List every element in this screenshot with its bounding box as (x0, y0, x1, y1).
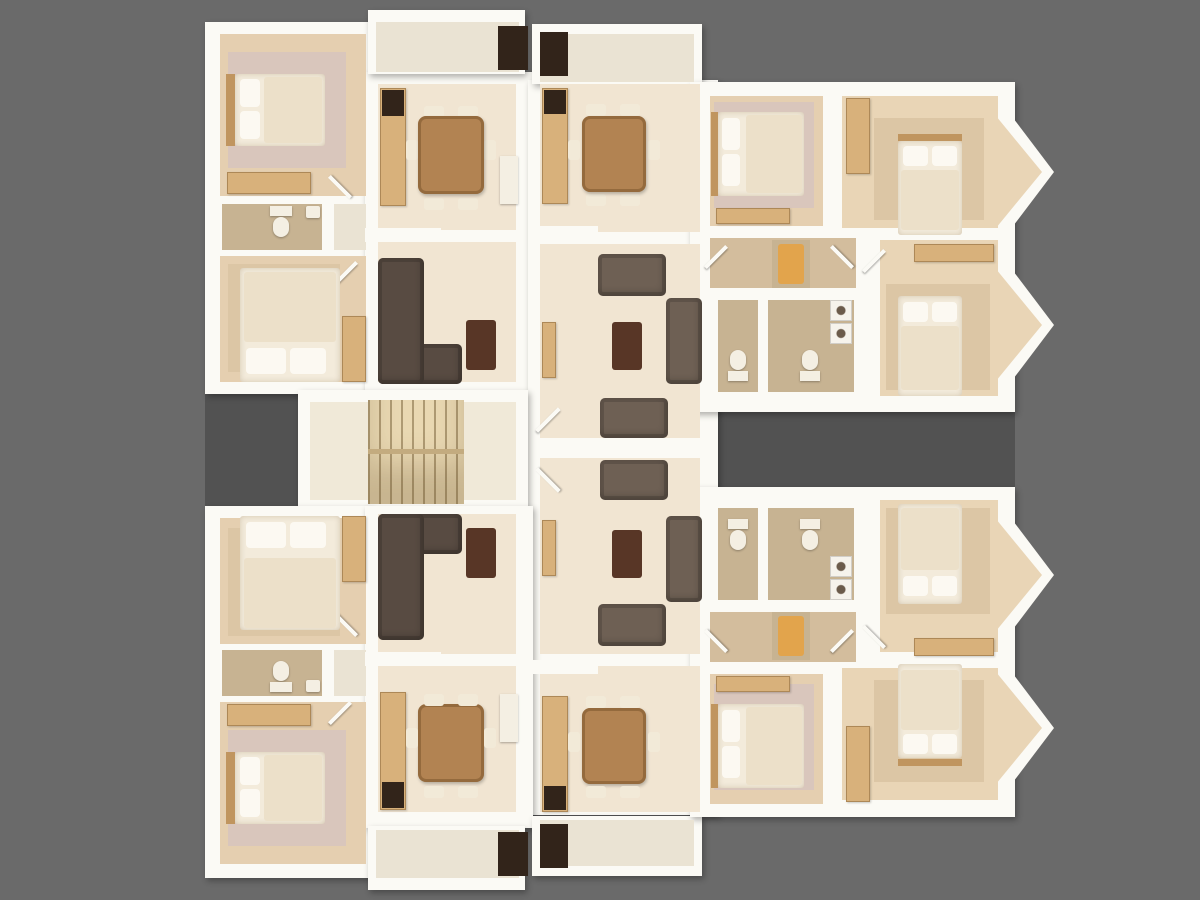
a-wardrobe (227, 172, 311, 194)
b-sofa-bottom (600, 398, 668, 438)
a-bed2-wardrobe (342, 316, 366, 382)
c-bed2-headboard (898, 134, 962, 141)
dining-chair (620, 104, 640, 116)
a-bed2-blanket (244, 272, 336, 342)
e-sideboard (542, 520, 556, 576)
c-bed1-dresser (716, 208, 790, 224)
a-coffee-table (466, 320, 496, 370)
balcony-mat (498, 832, 528, 876)
f-bed2-blanket (746, 707, 802, 785)
dining-chair (458, 786, 478, 798)
d-bed2-headboard (226, 752, 235, 824)
f-shower-mat (778, 616, 804, 656)
dining-chair (648, 732, 660, 752)
c-bed2-blanket (901, 170, 959, 230)
f-bed2-pillow (722, 710, 740, 742)
dining-chair (406, 728, 418, 748)
a-bed1-blanket (264, 77, 322, 143)
c-bed3-blanket (901, 326, 959, 390)
f-bed3-wardrobe (846, 726, 870, 802)
a-corridor-floor (334, 204, 366, 250)
c-toilet-bowl (802, 350, 818, 370)
d-bed1-pillow (246, 522, 286, 548)
f-bed2-pillow (722, 746, 740, 778)
a-bed2-pillow (246, 348, 286, 374)
d-toilet-bowl (273, 661, 289, 681)
f-bed1-pillow (903, 576, 928, 596)
c-bed1-pillow (722, 118, 740, 150)
c-washer (830, 323, 852, 344)
d-bed1-wardrobe (342, 516, 366, 582)
wall-stub (365, 228, 441, 242)
balcony-mat (540, 32, 568, 76)
dining-chair (406, 140, 418, 160)
d-wardrobe (227, 704, 311, 726)
d-sofa-vertical (378, 514, 424, 640)
f-bed3-headboard (898, 759, 962, 766)
dining-chair (424, 694, 444, 706)
c-bed3-pillow (932, 302, 957, 322)
a-toilet-bowl (273, 217, 289, 237)
c-bed1-pillow (722, 154, 740, 186)
dining-chair (620, 696, 640, 708)
c-toilet-bowl (730, 350, 746, 370)
c-bed1-headboard (711, 112, 718, 196)
a-cooktop (382, 90, 404, 116)
dining-chair (586, 786, 606, 798)
f-bed2-dresser (716, 676, 790, 692)
d-bed1-blanket (244, 558, 336, 628)
f-washer (830, 556, 852, 577)
dining-chair (648, 140, 660, 160)
d-dining-table (418, 704, 484, 782)
c-bed1-blanket (746, 115, 802, 193)
dining-chair (458, 694, 478, 706)
c-toilet-tank (728, 371, 748, 381)
b-dining-table (582, 116, 646, 192)
c-bed2-pillow (932, 146, 957, 166)
c-washer (830, 300, 852, 321)
e-dining-table (582, 708, 646, 784)
f-toilet-bowl (730, 530, 746, 550)
a-bed1-pillow (240, 79, 260, 107)
e-coffee-table (612, 530, 642, 578)
f-bed1-desk (914, 638, 994, 656)
e-sofa-bottom (598, 604, 666, 646)
dining-chair (568, 140, 580, 160)
c-toilet-tank (800, 371, 820, 381)
f-toilet-tank (728, 519, 748, 529)
f-bed2-headboard (711, 704, 718, 788)
b-coffee-table (612, 322, 642, 370)
recess-right (718, 412, 1015, 487)
d-toilet-tank (270, 682, 292, 692)
c-bed3-desk (914, 244, 994, 262)
dining-chair (484, 140, 496, 160)
a-dining-table (418, 116, 484, 194)
f-bed3-blanket (901, 670, 959, 730)
dining-chair (586, 194, 606, 206)
dining-chair (458, 198, 478, 210)
c-bed2-pillow (903, 146, 928, 166)
d-bed2-pillow (240, 789, 260, 817)
b-sideboard (542, 322, 556, 378)
dining-chair (586, 104, 606, 116)
staircase-landing-rail (368, 449, 464, 454)
dining-chair (620, 786, 640, 798)
a-bed1-pillow (240, 111, 260, 139)
e-sofa-top (600, 460, 668, 500)
f-washer (830, 579, 852, 600)
dining-chair (568, 732, 580, 752)
d-bed2-blanket (264, 755, 322, 821)
b-sofa-top (598, 254, 666, 296)
d-bed2-pillow (240, 757, 260, 785)
f-bed1-blanket (901, 508, 959, 570)
e-cooktop (544, 786, 566, 810)
d-corridor-floor (334, 650, 366, 696)
d-closet (500, 694, 518, 742)
balcony-mat (498, 26, 528, 70)
d-sink (306, 680, 320, 692)
floor-plan-screenshot (0, 0, 1200, 900)
b-cooktop (544, 90, 566, 114)
dining-chair (586, 696, 606, 708)
a-closet (500, 156, 518, 204)
f-bed3-pillow (932, 734, 957, 754)
balcony-mat (540, 824, 568, 868)
c-shower-mat (778, 244, 804, 284)
wall-stub (365, 652, 441, 666)
a-sink (306, 206, 320, 218)
dining-chair (620, 194, 640, 206)
a-bed2-pillow (290, 348, 326, 374)
e-sofa-side (666, 516, 702, 602)
b-sofa-side (666, 298, 702, 384)
c-bed3-pillow (903, 302, 928, 322)
dining-chair (424, 786, 444, 798)
dining-chair (484, 728, 496, 748)
d-cooktop (382, 782, 404, 808)
f-toilet-bowl (802, 530, 818, 550)
dining-chair (424, 198, 444, 210)
recess-left (205, 394, 298, 506)
d-coffee-table (466, 528, 496, 578)
a-sofa-vertical (378, 258, 424, 384)
f-bed1-pillow (932, 576, 957, 596)
a-bed1-headboard (226, 74, 235, 146)
wall-stub (528, 226, 598, 240)
a-toilet-tank (270, 206, 292, 216)
wall-stub (528, 660, 598, 674)
f-bed3-pillow (903, 734, 928, 754)
f-toilet-tank (800, 519, 820, 529)
d-bed1-pillow (290, 522, 326, 548)
c-bed2-wardrobe (846, 98, 870, 174)
